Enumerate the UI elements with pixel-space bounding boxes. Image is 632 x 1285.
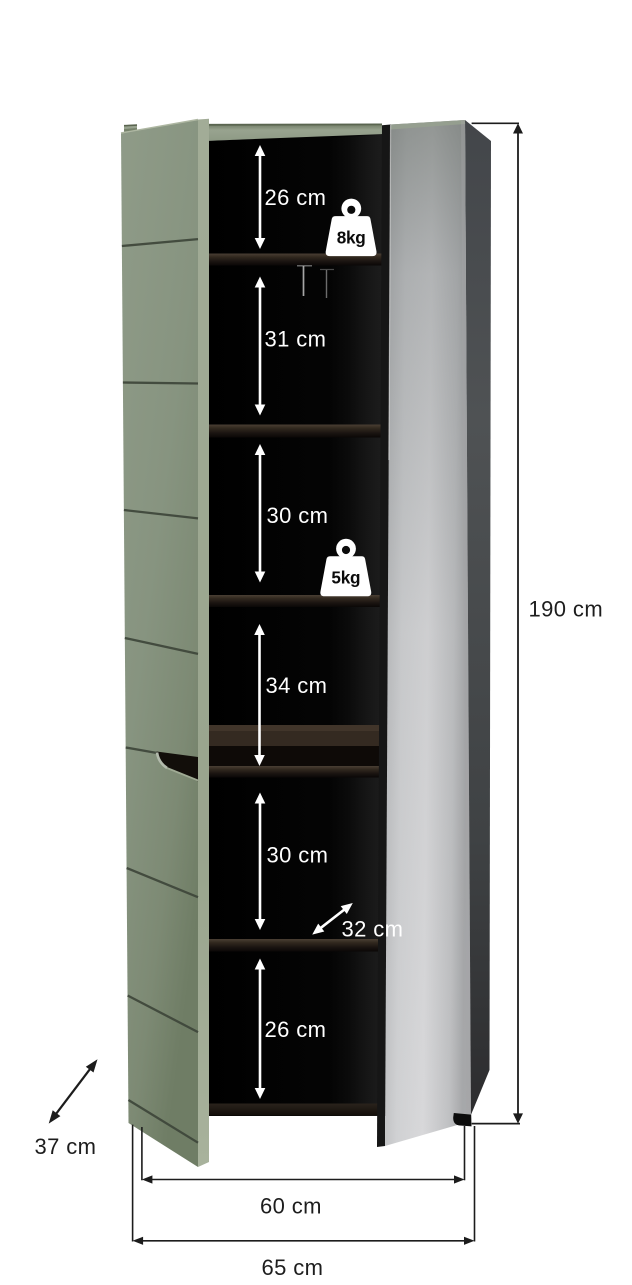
- svg-text:8kg: 8kg: [337, 227, 366, 247]
- svg-text:30 cm: 30 cm: [267, 843, 329, 868]
- svg-text:37 cm: 37 cm: [35, 1134, 97, 1159]
- svg-text:26 cm: 26 cm: [265, 1017, 327, 1042]
- svg-text:32 cm: 32 cm: [342, 917, 404, 942]
- svg-text:5kg: 5kg: [331, 568, 360, 588]
- svg-text:190 cm: 190 cm: [529, 597, 604, 622]
- svg-text:65 cm: 65 cm: [262, 1255, 324, 1280]
- svg-text:30 cm: 30 cm: [267, 503, 329, 528]
- svg-text:31 cm: 31 cm: [265, 327, 327, 352]
- svg-text:34 cm: 34 cm: [266, 673, 328, 698]
- svg-text:60 cm: 60 cm: [260, 1194, 322, 1219]
- svg-text:26 cm: 26 cm: [265, 185, 327, 210]
